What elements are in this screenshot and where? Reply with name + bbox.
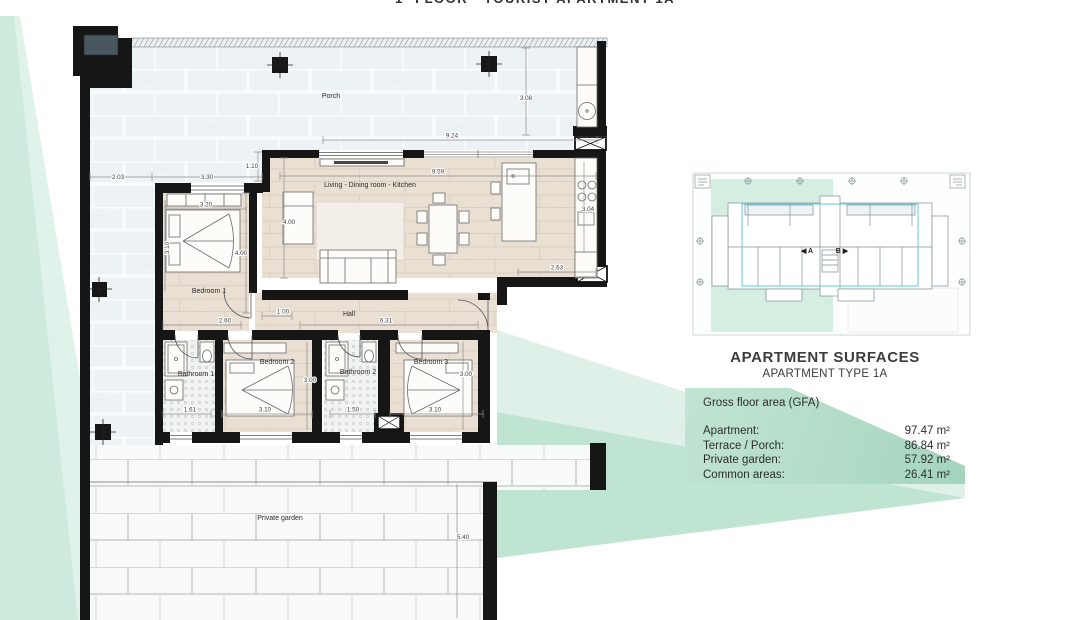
dim-label: 3.08 (520, 95, 533, 102)
dim-label: 3.00 (460, 371, 473, 378)
room-label-bedroom2: Bedroom 2 (260, 359, 294, 366)
room-label-porch: Porch (322, 93, 340, 100)
room-label-hall: Hall (343, 311, 356, 318)
key-plan-unit-b-label: B ▶ (836, 248, 849, 255)
surfaces-table: Apartment: 97.47 m² Terrace / Porch: 86.… (703, 424, 950, 482)
dim-label: 2.03 (112, 174, 125, 181)
dim-label: 9.59 (432, 169, 445, 176)
dim-label: 3.10 (429, 407, 442, 414)
table-row: Private garden: 57.92 m² (703, 453, 950, 468)
table-row: Apartment: 97.47 m² (703, 424, 950, 439)
surfaces-heading: APARTMENT SURFACES APARTMENT TYPE 1A (683, 349, 967, 380)
surface-row-label: Private garden: (703, 453, 781, 468)
surface-row-value: 57.92 m² (905, 453, 950, 468)
key-plan: ◀ A B ▶ (693, 173, 970, 335)
dim-label: 3.10 (164, 241, 171, 254)
key-plan-unit-a-label: ◀ A (800, 248, 813, 255)
dim-label: 6.31 (380, 318, 393, 325)
dim-label: 3.20 (200, 202, 213, 209)
dim-label: 3.10 (259, 407, 272, 414)
dim-label: 1.61 (184, 407, 197, 414)
surface-row-value: 86.84 m² (905, 439, 950, 454)
dim-label: 4.00 (235, 250, 248, 257)
roof-light (84, 35, 118, 55)
surface-row-label: Apartment: (703, 424, 759, 439)
dim-label: 1.50 (347, 407, 360, 414)
surface-row-value: 97.47 m² (905, 424, 950, 439)
balcony-rail (131, 38, 607, 47)
dim-label: 9.24 (446, 133, 459, 140)
basin-1 (165, 380, 183, 400)
surfaces-section-label: Gross floor area (GFA) (703, 397, 819, 409)
dim-label: 4.00 (283, 219, 296, 226)
dim-label: 2.63 (551, 265, 564, 272)
surface-row-label: Terrace / Porch: (703, 439, 784, 454)
sofa (320, 250, 396, 283)
room-label-bedroom3: Bedroom 3 (414, 359, 448, 366)
dim-label: 5.40 (457, 534, 470, 541)
floor-plan-drawing: 2.03 3.30 1.10 9.24 3.08 9.59 3.20 4.00 … (0, 0, 1070, 620)
room-label-garden: Private garden (257, 515, 303, 522)
dim-label: 3.30 (201, 174, 214, 181)
dim-label: 2.60 (219, 318, 232, 325)
closet-3 (396, 343, 458, 353)
dim-label: 1.00 (277, 309, 290, 316)
dining-table (429, 205, 457, 253)
room-label-bathroom1: Bathroom 1 (178, 371, 214, 378)
page: 2.03 3.30 1.10 9.24 3.08 9.59 3.20 4.00 … (0, 0, 1070, 620)
room-label-bedroom1: Bedroom 1 (192, 288, 226, 295)
surface-row-label: Common areas: (703, 468, 785, 483)
garden-floor (90, 482, 483, 620)
room-label-bathroom2: Bathroom 2 (340, 369, 376, 376)
dim-label: 3.04 (582, 206, 595, 213)
page-title: 1ª FLOOR · TOURIST APARTMENT 1A (0, 0, 1070, 6)
dim-label: 1.10 (246, 163, 259, 170)
dim-label: 3.00 (304, 377, 317, 384)
table-row: Terrace / Porch: 86.84 m² (703, 439, 950, 454)
key-plan-building (712, 196, 948, 301)
room-label-living: Living - Dining room - Kitchen (324, 182, 416, 189)
surface-row-value: 26.41 m² (905, 468, 950, 483)
surfaces-subtitle: APARTMENT TYPE 1A (683, 368, 967, 380)
surfaces-title: APARTMENT SURFACES (683, 349, 967, 366)
basin-2 (326, 380, 344, 400)
porch-counter (577, 47, 597, 127)
fridge (575, 252, 597, 277)
table-row: Common areas: 26.41 m² (703, 468, 950, 483)
armchair (283, 192, 313, 244)
closet-2 (224, 343, 286, 353)
